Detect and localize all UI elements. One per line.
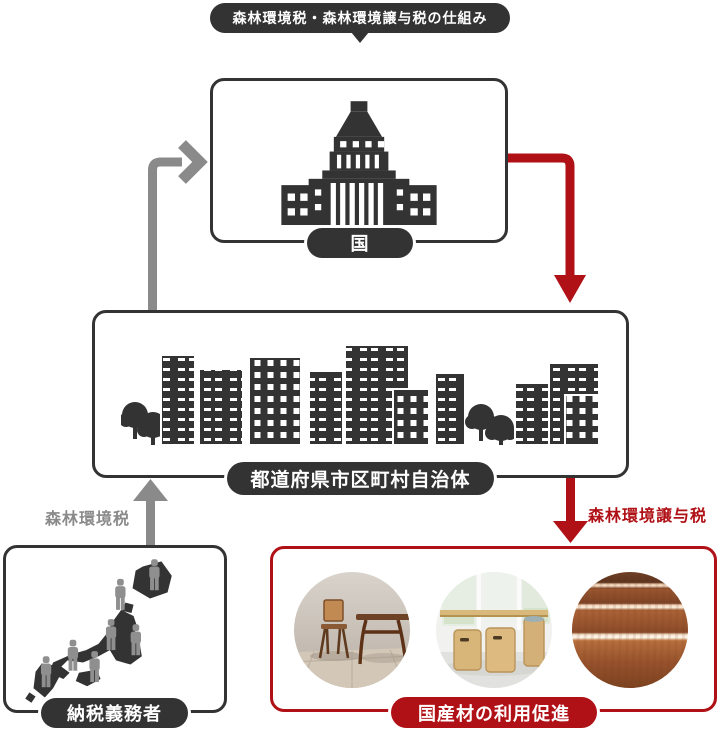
municipal-label-badge: 都道府県市区町村自治体: [227, 462, 494, 495]
forest-env-tax-label: 森林環境税: [45, 505, 130, 529]
municipal-label: 都道府県市区町村自治体: [250, 465, 470, 492]
taxpayer-label: 納税義務者: [67, 700, 162, 726]
title-pointer-icon: [351, 32, 369, 43]
national-diet-building-icon: [274, 97, 444, 225]
taxpayer-label-badge: 納税義務者: [41, 698, 188, 728]
national-label-badge: 国: [307, 228, 413, 258]
forest-env-transfer-tax-label: 森林環境譲与税: [588, 502, 707, 526]
promotion-box: [270, 546, 717, 712]
title-badge: 森林環境税・森林環境譲与税の仕組み: [210, 3, 510, 33]
promotion-label-badge: 国産材の利用促進: [391, 697, 597, 728]
wooden-stools-photo: [436, 572, 552, 688]
arrow-municipal-to-promotion: [548, 478, 593, 544]
municipal-box: [92, 310, 629, 478]
title-text: 森林環境税・森林環境譲与税の仕組み: [233, 8, 488, 28]
arrow-taxpayer-to-municipal: [128, 478, 173, 546]
cityscape-icon: [121, 345, 601, 445]
japan-map-people-icon: [17, 556, 213, 706]
wooden-chair-and-desk-photo: [294, 572, 410, 688]
taxpayer-box: [3, 545, 227, 713]
promotion-label: 国産材の利用促進: [418, 700, 570, 726]
national-label: 国: [351, 230, 370, 256]
wood-grain-steps-photo: [572, 572, 688, 688]
national-box: [210, 78, 508, 243]
arrow-municipal-to-national: [140, 140, 212, 312]
arrow-national-to-municipal: [506, 148, 586, 306]
diagram-root: 森林環境税・森林環境譲与税の仕組み: [0, 0, 720, 732]
